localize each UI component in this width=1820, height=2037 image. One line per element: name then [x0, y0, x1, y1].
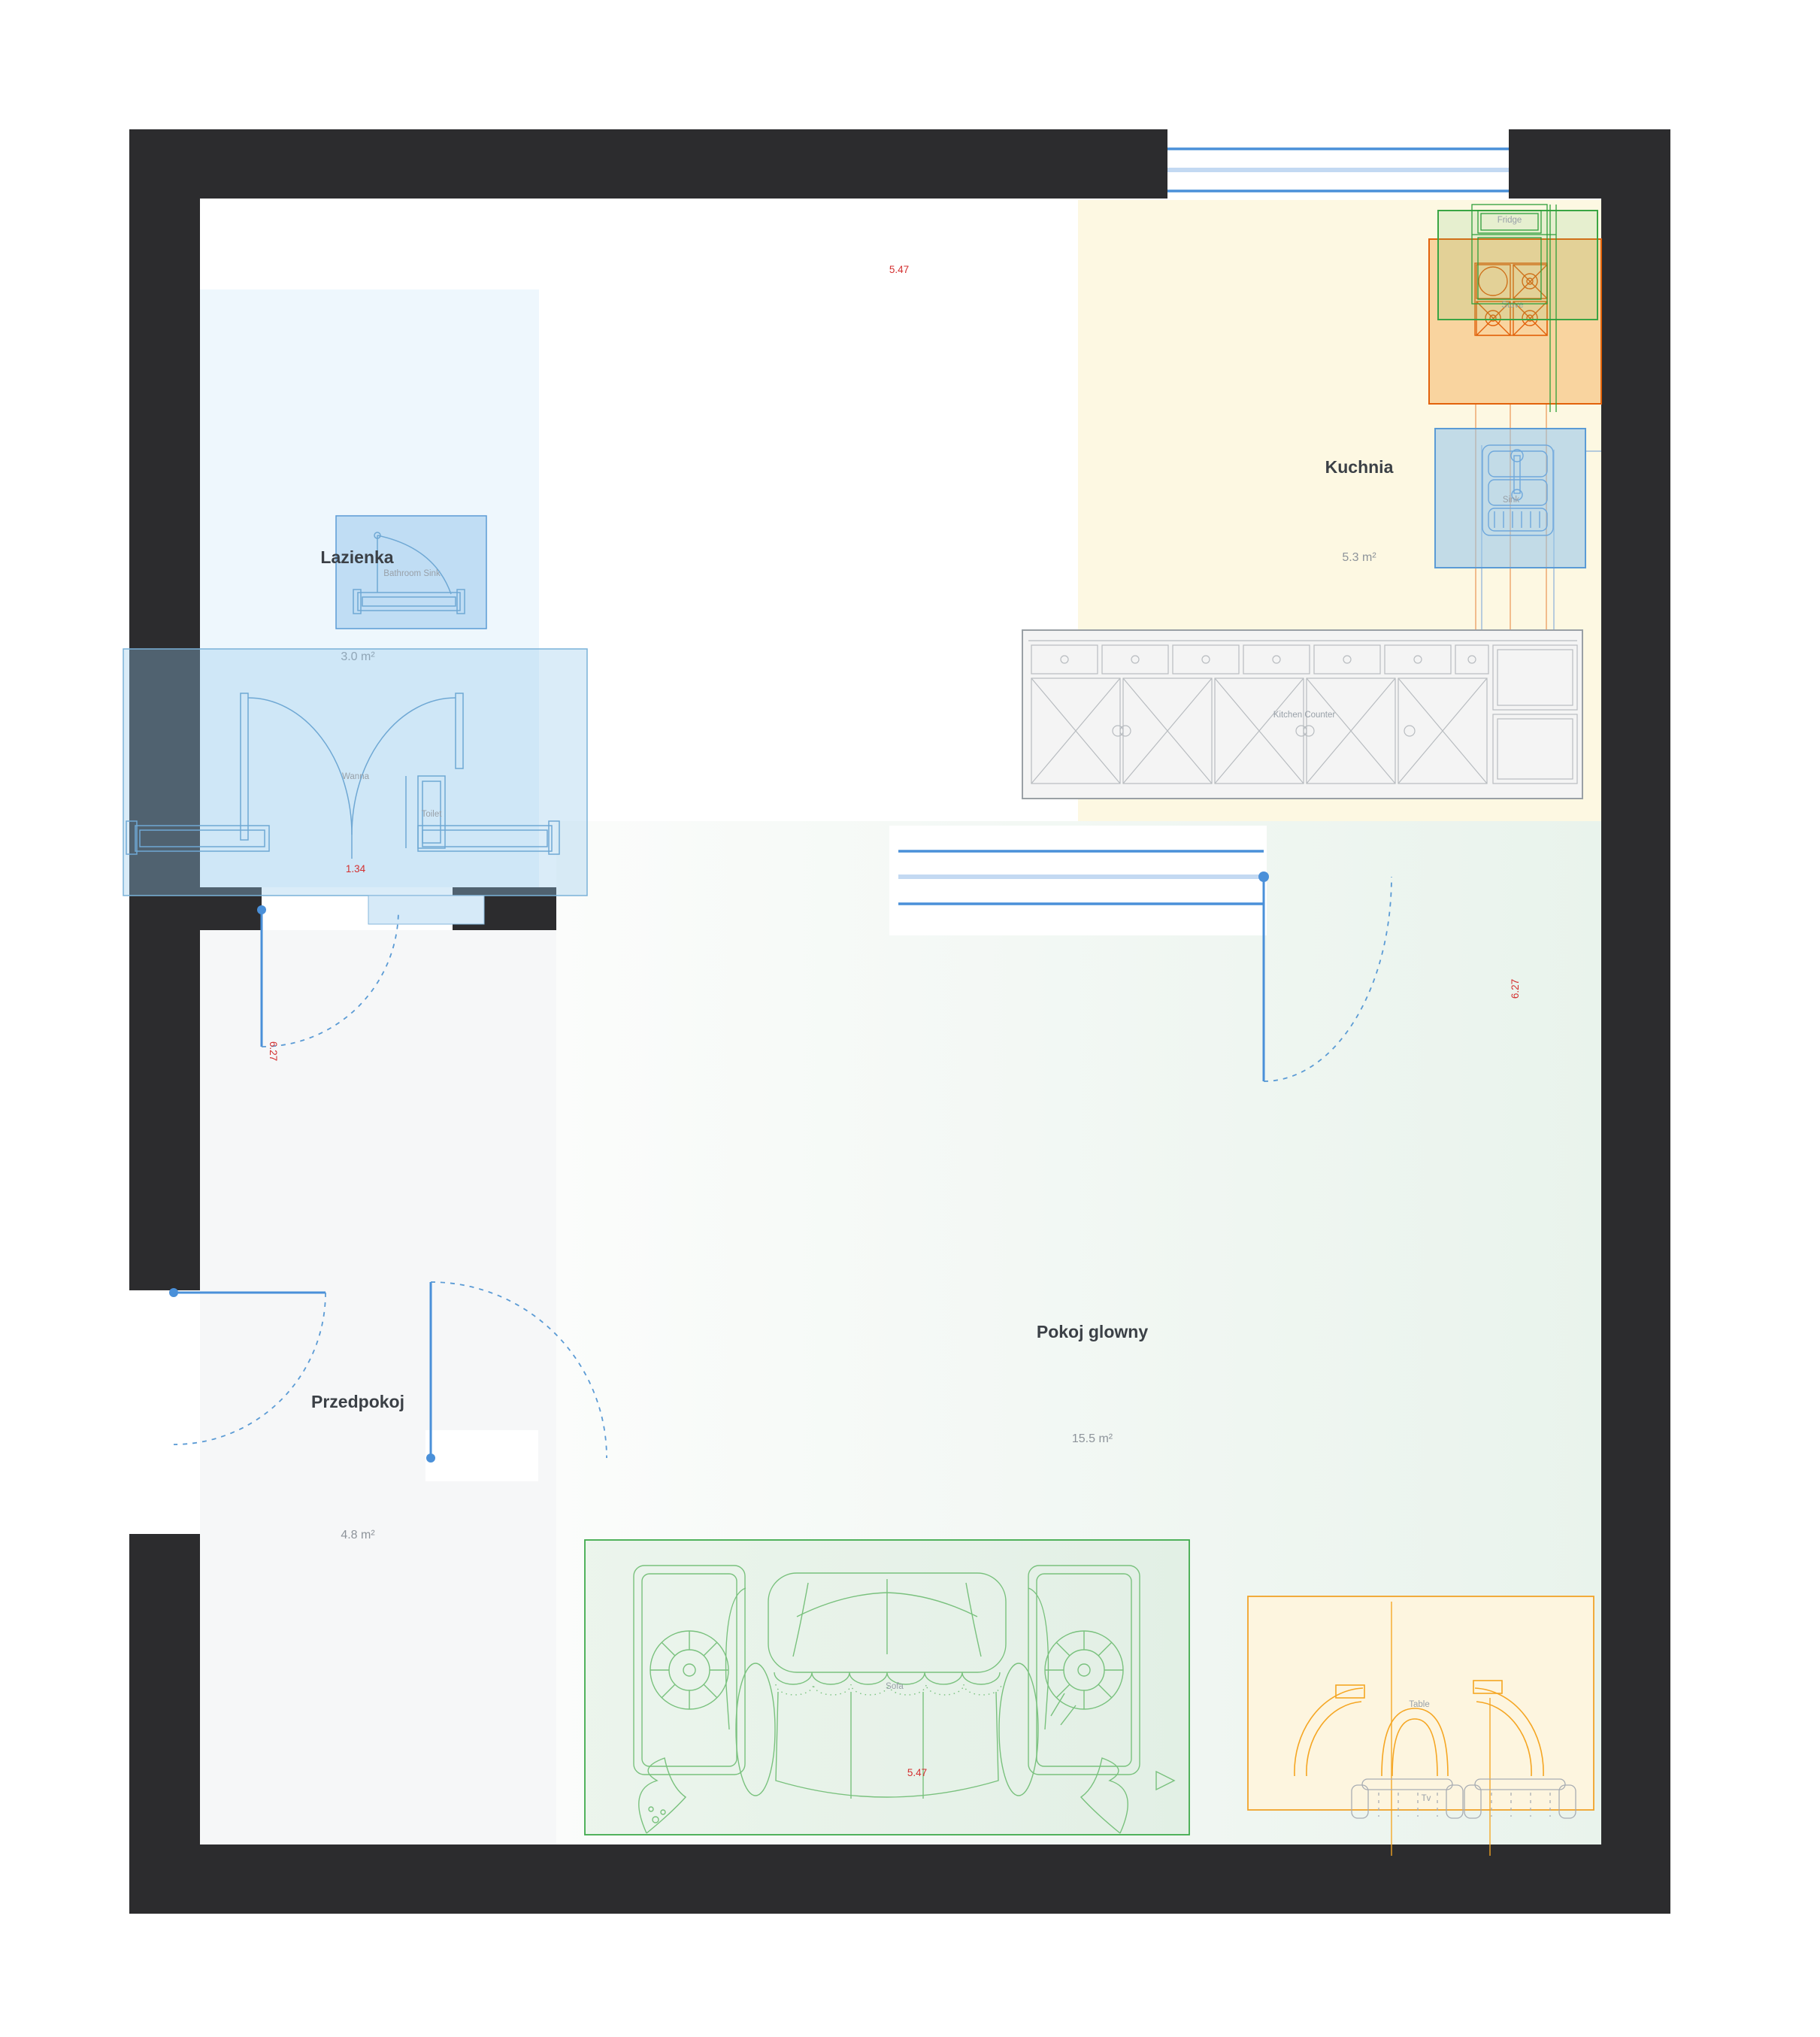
- wall-top-left: [129, 129, 1167, 199]
- wall-right: [1601, 199, 1670, 1914]
- dim-top-width: 5.47: [889, 264, 909, 275]
- kitchen-sink: Sink: [1435, 429, 1585, 568]
- living-room-name: Pokoj glowny: [1037, 1322, 1148, 1341]
- floor-plan: Bathroom Sink Lazienka 3.0 m² Wanna 1.34: [0, 0, 1820, 2037]
- hallway-name: Przedpokoj: [311, 1392, 404, 1411]
- wall-bottom: [129, 1845, 1670, 1914]
- dim-bathroom-width: 1.34: [346, 863, 366, 875]
- kitchen-counter-label: Kitchen Counter: [1273, 711, 1336, 720]
- kitchen-counter: Kitchen Counter: [1022, 630, 1582, 799]
- toilet-label: Toilet: [422, 810, 443, 819]
- bathroom-sink: Bathroom Sink: [336, 516, 486, 629]
- hallway-floor: [200, 930, 556, 1845]
- hallway-door-hinge: [426, 1453, 435, 1463]
- hallway-area: 4.8 m²: [341, 1529, 375, 1541]
- window-top: [1167, 129, 1509, 199]
- bathroom-door-gap-fill: [368, 896, 484, 924]
- table-label: Table: [1409, 1700, 1430, 1709]
- partition-opening: [889, 826, 1267, 935]
- kitchen-door-hinge: [1258, 871, 1269, 882]
- bathtub: Wanna 1.34: [123, 649, 587, 896]
- fridge-label: Fridge: [1497, 216, 1522, 225]
- entrance-door-hinge: [169, 1288, 178, 1297]
- bathtub-label: Wanna: [342, 772, 370, 781]
- dim-bottom-width: 5.47: [907, 1767, 927, 1778]
- sofa: Sofa 5.47: [585, 1540, 1189, 1835]
- bathroom-sink-label: Bathroom Sink: [383, 569, 441, 578]
- sofa-label: Sofa: [886, 1682, 904, 1691]
- kitchen-name: Kuchnia: [1325, 457, 1394, 477]
- dim-left-height: 6.27: [268, 1041, 279, 1061]
- living-room-area: 15.5 m²: [1072, 1432, 1113, 1445]
- bathroom-name: Lazienka: [320, 547, 393, 567]
- hallway-door-opening: [425, 1430, 538, 1481]
- window-top-opening: [1167, 129, 1509, 199]
- kitchen-sink-label: Sink: [1503, 496, 1520, 505]
- dim-right-height: 6.27: [1510, 979, 1521, 999]
- kitchen-area: 5.3 m²: [1342, 551, 1376, 564]
- tv-label: Tv: [1422, 1794, 1431, 1803]
- bathroom-door-hinge: [257, 905, 266, 914]
- wall-top-right: [1509, 129, 1670, 199]
